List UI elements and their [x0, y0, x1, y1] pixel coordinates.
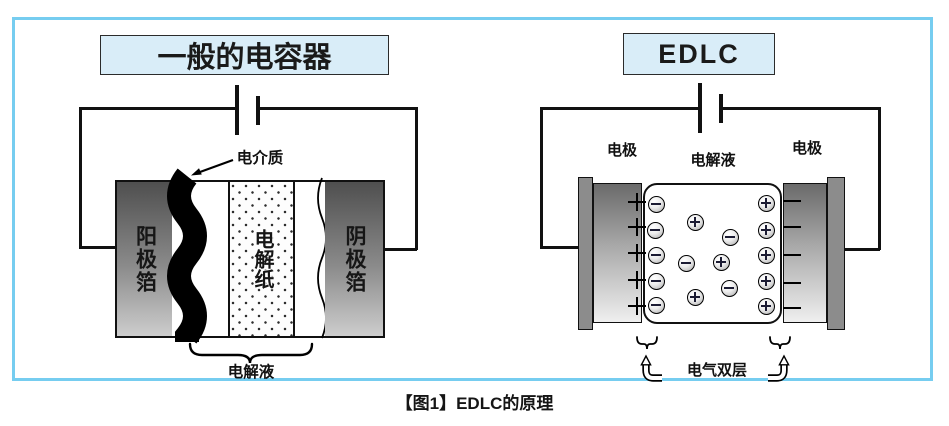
wire: [540, 107, 543, 248]
plus-ion: [758, 273, 775, 290]
electrolytic-paper: 电解纸: [228, 182, 295, 336]
plus-charge-icon: [628, 193, 646, 211]
plus-charge-icon: [628, 297, 646, 315]
wire: [384, 248, 417, 251]
paper-label: 电解纸: [252, 229, 271, 289]
minus-charge-icon: [783, 254, 801, 257]
wire: [721, 107, 880, 110]
small-brace-icon: [636, 336, 658, 350]
dielectric-label: 电介质: [234, 150, 286, 168]
plus-ion: [758, 195, 775, 212]
wire: [845, 248, 880, 251]
cathode-foil: 阴极箔: [325, 182, 383, 336]
plus-charge-icon: [628, 244, 646, 262]
figure-caption: 【图1】EDLC的原理: [0, 389, 949, 414]
plus-ion: [687, 214, 704, 231]
dielectric-arrow-icon: [188, 155, 238, 180]
plus-ion: [758, 247, 775, 264]
minus-charge-icon: [783, 282, 801, 285]
minus-ion: [721, 280, 738, 297]
double-layer-label: 电气双层: [678, 362, 756, 379]
wire: [540, 107, 700, 110]
battery-short-plate-icon: [256, 96, 260, 125]
plus-ion: [758, 222, 775, 239]
minus-ion: [648, 247, 665, 264]
minus-charge-icon: [783, 200, 801, 203]
minus-ion: [647, 222, 664, 239]
minus-charge-icon: [783, 226, 801, 229]
plus-ion: [713, 254, 730, 271]
anode-label: 阳极箔: [130, 225, 160, 294]
electrode-right-label: 电极: [783, 140, 831, 157]
plus-ion: [687, 289, 704, 306]
curved-arrow-up-left-icon: [640, 354, 664, 380]
electrode-left-label: 电极: [598, 142, 646, 159]
edlc-title: EDLC: [658, 39, 740, 70]
wire: [878, 107, 881, 250]
curved-arrow-up-right-icon: [766, 354, 790, 380]
capacitor-stack: 阳极箔 电解纸 阴极箔: [115, 180, 385, 338]
minus-ion: [648, 273, 665, 290]
edlc-title-box: EDLC: [623, 33, 775, 75]
brace-icon: [188, 342, 314, 364]
minus-ion: [722, 229, 739, 246]
wire: [258, 107, 417, 110]
dielectric-wavy-strip-icon: [157, 180, 213, 340]
plus-charge-icon: [628, 271, 646, 289]
small-brace-icon: [769, 336, 791, 350]
battery-long-plate-icon: [235, 85, 239, 135]
battery-long-plate-icon: [698, 83, 702, 133]
minus-charge-icon: [783, 307, 801, 310]
wire: [79, 246, 117, 249]
left-title: 一般的电容器: [157, 34, 331, 76]
wire: [79, 107, 237, 110]
left-title-box: 一般的电容器: [100, 35, 389, 75]
minus-ion: [678, 255, 695, 272]
wire: [79, 107, 82, 248]
battery-short-plate-icon: [719, 94, 723, 123]
wire: [540, 246, 579, 249]
electrolyte-label-left: 电解液: [188, 364, 314, 382]
current-collector-left: [578, 177, 593, 330]
wire: [415, 107, 418, 250]
current-collector-right: [827, 177, 845, 330]
figure-canvas: 一般的电容器 电介质 阳极箔 电解纸 阴极箔 电解液: [0, 0, 949, 426]
minus-ion: [648, 196, 665, 213]
electrolyte-label-top: 电解液: [683, 152, 743, 169]
minus-ion: [648, 297, 665, 314]
cathode-label: 阴极箔: [339, 225, 369, 294]
plus-ion: [758, 298, 775, 315]
plus-charge-icon: [628, 218, 646, 236]
